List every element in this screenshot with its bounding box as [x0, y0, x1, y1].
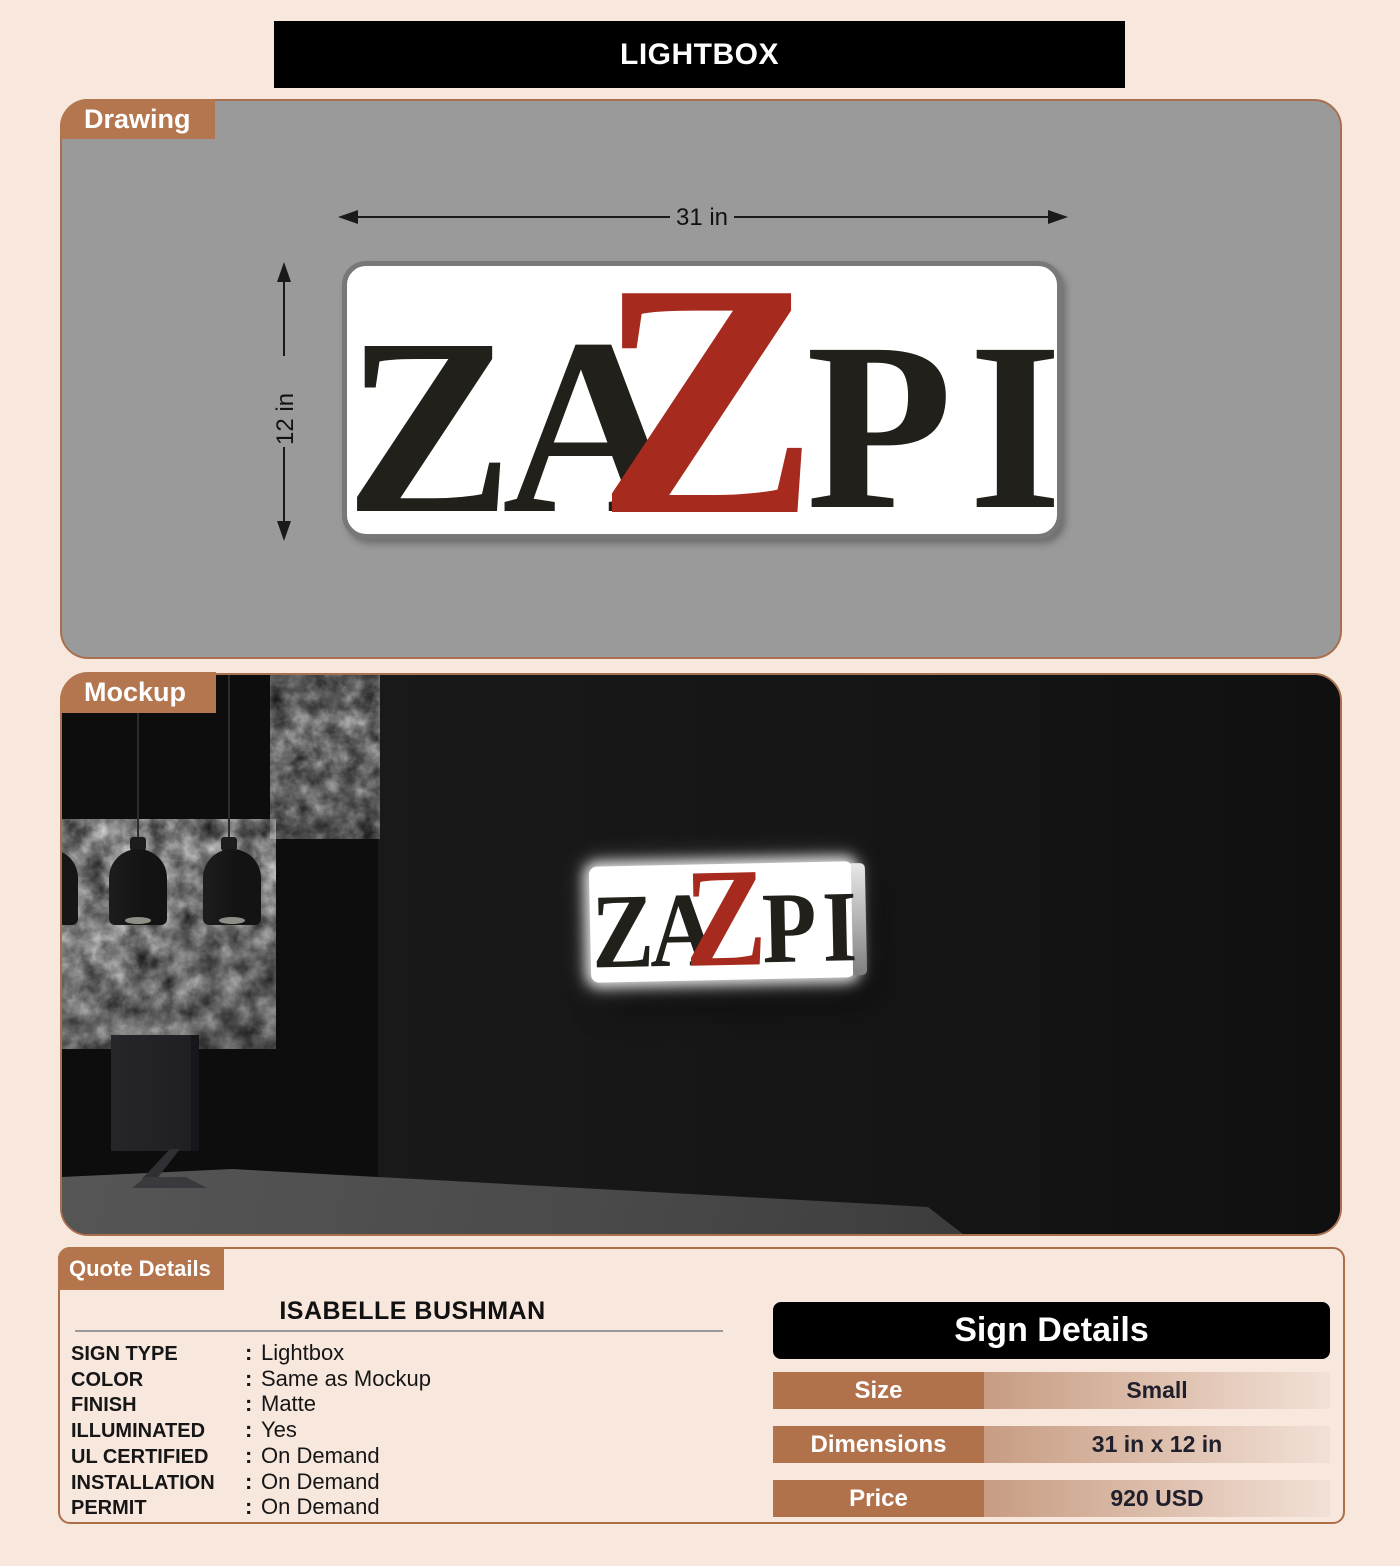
svg-text:12 in: 12 in: [272, 393, 297, 445]
